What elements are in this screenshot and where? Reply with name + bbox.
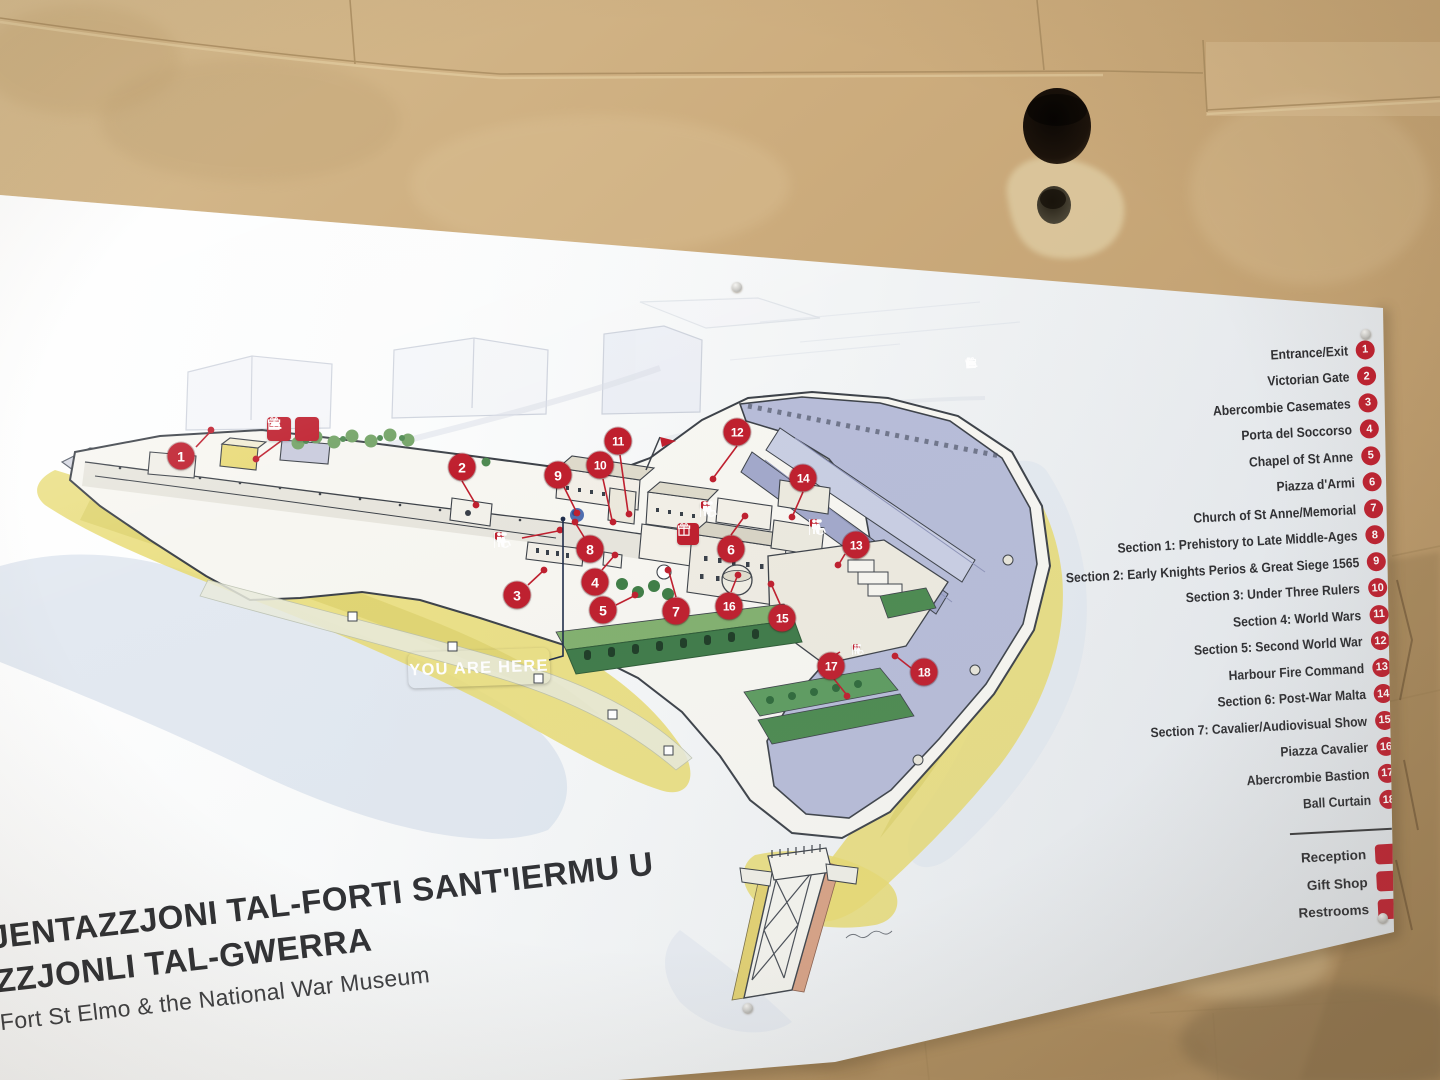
legend-item-number: 10 — [1368, 578, 1388, 598]
legend-item-number: 3 — [1358, 393, 1378, 413]
map-legend: Entrance/Exit1Victorian Gate2Abercombie … — [965, 336, 1405, 943]
screw-icon — [1378, 913, 1388, 923]
legend-item-label: Section 6: Post-War Malta — [1217, 687, 1366, 710]
legend-item-number: 13 — [1372, 657, 1392, 677]
marker-number: 10 — [594, 458, 606, 472]
legend-item-label: Piazza Cavalier — [1280, 740, 1368, 760]
legend-item-number: 2 — [1357, 366, 1377, 386]
map-marker-10: 10 — [587, 452, 614, 479]
map-badge-reception_gift — [267, 417, 319, 441]
marker-number: 3 — [513, 587, 521, 603]
restrooms-icon — [809, 519, 819, 527]
legend-item-number: 11 — [1369, 604, 1389, 624]
legend-item-label: Abercombie Casemates — [1213, 396, 1351, 418]
screw-icon — [743, 1003, 753, 1013]
facility-label: Restrooms — [1298, 902, 1369, 921]
map-marker-6: 6 — [718, 536, 745, 563]
legend-item-number: 5 — [1361, 446, 1381, 466]
map-marker-16: 16 — [716, 593, 743, 620]
legend-item-label: Entrance/Exit — [1270, 343, 1348, 362]
marker-number: 14 — [797, 471, 809, 485]
marker-number: 8 — [586, 541, 594, 557]
map-marker-7: 7 — [663, 598, 690, 625]
marker-number: 6 — [727, 541, 735, 557]
legend-item-label: Piazza d'Armi — [1276, 475, 1355, 494]
map-marker-12: 12 — [724, 419, 751, 446]
marker-number: 2 — [458, 459, 466, 475]
marker-number: 13 — [850, 538, 862, 552]
map-marker-9: 9 — [545, 462, 572, 489]
you-are-here-badge: YOU ARE HERE — [407, 648, 550, 689]
map-marker-8: 8 — [577, 536, 604, 563]
map-marker-18: 18 — [911, 659, 938, 686]
marker-number: 18 — [918, 665, 930, 679]
marker-number: 12 — [731, 425, 743, 439]
legend-item-label: Section 4: World Wars — [1233, 608, 1362, 630]
legend-item-label: Harbour Fire Command — [1228, 661, 1364, 683]
legend-item-label: Abercrombie Bastion — [1247, 767, 1370, 788]
marker-number: 5 — [599, 602, 607, 618]
legend-item-label: Chapel of St Anne — [1249, 449, 1354, 469]
gift-icon — [677, 523, 699, 545]
map-marker-14: 14 — [790, 465, 817, 492]
legend-item-label: Porta del Soccorso — [1241, 423, 1352, 444]
marker-number: 7 — [672, 603, 680, 619]
marker-number: 11 — [612, 434, 624, 448]
legend-item-label: Section 5: Second World War — [1194, 634, 1363, 658]
map-marker-4: 4 — [582, 569, 609, 596]
marker-number: 15 — [776, 611, 788, 625]
legend-item-label: Section 3: Under Three Rulers — [1186, 581, 1361, 605]
marker-number: 16 — [723, 599, 735, 613]
photo-of-fort-map-sign: 123456789101112131415161718 YOU ARE HERE… — [0, 0, 1440, 1080]
map-marker-2: 2 — [449, 454, 476, 481]
legend-item-number: 7 — [1364, 499, 1384, 519]
legend-divider — [1290, 828, 1392, 835]
map-marker-5: 5 — [590, 597, 617, 624]
legend-item-number: 4 — [1359, 419, 1379, 439]
map-marker-11: 11 — [605, 428, 632, 455]
marker-number: 9 — [554, 467, 562, 483]
legend-item-label: Church of St Anne/Memorial — [1193, 502, 1356, 526]
facility-label: Reception — [1301, 847, 1367, 865]
map-marker-3: 3 — [504, 582, 531, 609]
marker-number: 4 — [591, 574, 599, 590]
legend-item-number: 6 — [1362, 472, 1382, 492]
legend-item-number: 8 — [1365, 525, 1385, 545]
facility-label: Gift Shop — [1307, 875, 1368, 893]
legend-item-number: 1 — [1355, 340, 1375, 360]
marker-number: 17 — [825, 659, 837, 673]
map-marker-15: 15 — [769, 605, 796, 632]
restrooms-icon — [494, 532, 504, 540]
map-marker-17: 17 — [818, 653, 845, 680]
legend-item-number: 9 — [1366, 551, 1386, 571]
legend-item-label: Ball Curtain — [1303, 793, 1372, 812]
restrooms-icon — [700, 501, 710, 509]
screw-icon — [1361, 329, 1371, 339]
restrooms-icon — [852, 644, 860, 650]
you-are-here-point — [561, 517, 566, 522]
legend-item-number: 12 — [1370, 631, 1390, 651]
marker-number: 1 — [177, 448, 185, 464]
screw-icon — [732, 282, 742, 292]
map-marker-13: 13 — [843, 532, 870, 559]
legend-items: Entrance/Exit1Victorian Gate2Abercombie … — [965, 336, 1399, 834]
gift-icon — [295, 417, 319, 441]
legend-item-label: Victorian Gate — [1267, 370, 1350, 389]
map-marker-1: 1 — [168, 443, 195, 470]
